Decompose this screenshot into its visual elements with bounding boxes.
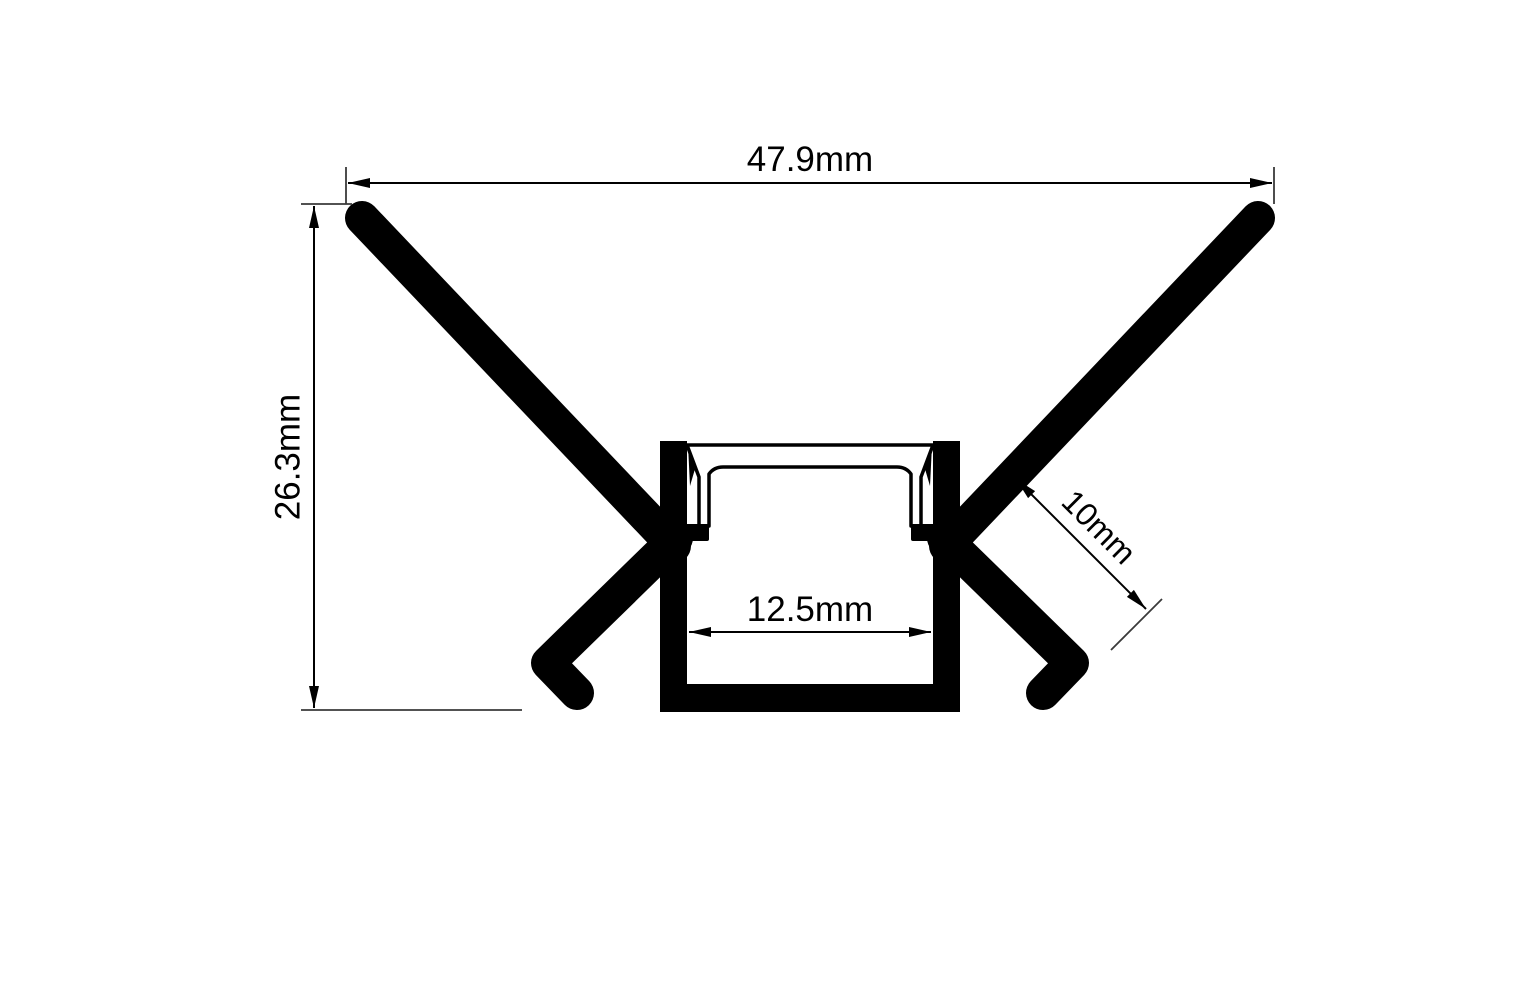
left-hook-leg (548, 538, 676, 693)
arrowhead-down-icon (309, 686, 319, 708)
left-wing-flange (362, 218, 674, 546)
arrowhead-left-icon (689, 627, 711, 637)
technical-drawing-canvas: 47.9mm 26.3mm 12.5mm 10mm (0, 0, 1523, 1006)
arrowhead-left-icon (348, 178, 370, 188)
cover-outline (687, 445, 933, 526)
diffuser-cover (682, 445, 938, 541)
dimension-label-inner-width: 12.5mm (747, 590, 873, 629)
profile-cross-section-drawing: 47.9mm 26.3mm 12.5mm 10mm (0, 0, 1523, 1006)
dimension-label-flange-gap: 10mm (1055, 483, 1143, 571)
dimension-label-overall-height: 26.3mm (269, 394, 308, 520)
dimension-overall-width: 47.9mm (346, 140, 1274, 204)
right-wing-flange (946, 218, 1258, 546)
dimension-label-overall-width: 47.9mm (747, 140, 873, 179)
cover-right-foot (911, 524, 938, 541)
dimension-overall-height: 26.3mm (269, 204, 523, 710)
arrowhead-right-icon (1250, 178, 1272, 188)
right-hook-leg (944, 538, 1072, 693)
arrowhead-right-icon (909, 627, 931, 637)
arrowhead-up-icon (309, 206, 319, 228)
dimension-inner-width: 12.5mm (689, 590, 931, 637)
cover-left-foot (682, 524, 709, 541)
extension-line (1111, 599, 1162, 650)
